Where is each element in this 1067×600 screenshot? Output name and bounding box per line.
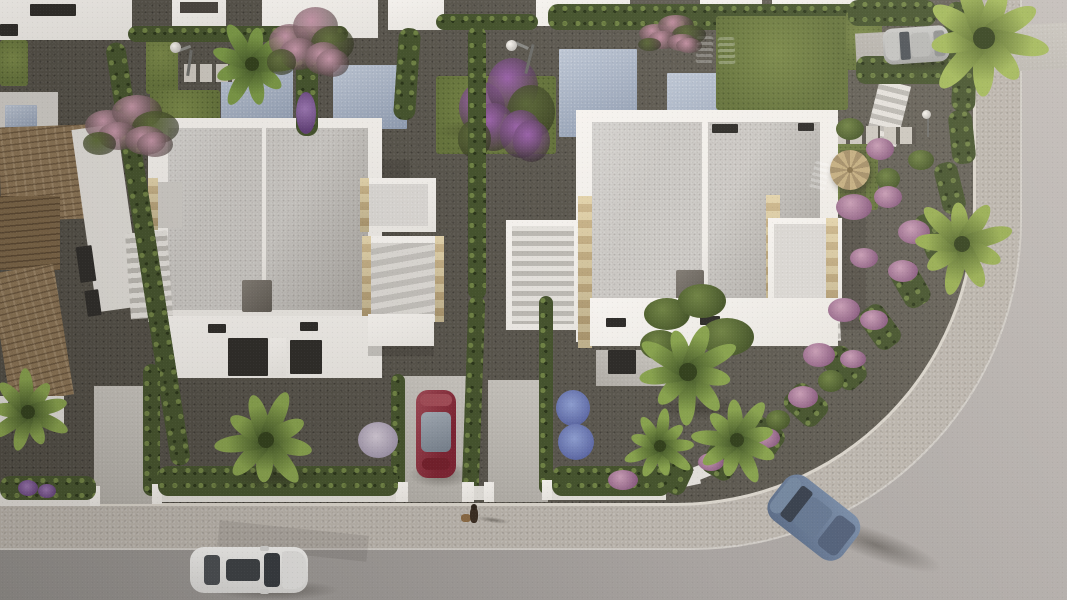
red-car-hood — [420, 394, 452, 406]
house2-skylight-2 — [798, 123, 814, 131]
palm-topright — [918, 0, 1050, 104]
street-lamp-1 — [170, 42, 196, 76]
tree-blob — [638, 38, 661, 52]
house1-canopy — [368, 314, 434, 346]
bush-pink-10 — [840, 350, 866, 368]
street-lamp-2 — [506, 36, 538, 74]
pink-tree-1 — [78, 94, 168, 156]
house1-porch-glass-1 — [228, 338, 268, 376]
bush-hydrangea-2 — [558, 424, 594, 460]
palm-crown — [679, 363, 696, 380]
red-car-roofbar — [421, 430, 451, 436]
palm-house2-b — [691, 394, 783, 486]
palm-house2-c — [622, 408, 698, 484]
palm-crown — [21, 405, 35, 419]
house1-window-2 — [300, 322, 318, 331]
bush-pink-5 — [850, 248, 878, 268]
aerial-3d-render — [0, 0, 1067, 600]
lawn-top-corner — [0, 40, 28, 86]
silver-car-windshield — [899, 31, 911, 60]
house1-roof-box — [242, 280, 272, 312]
house1-terrace-upper-floor — [368, 184, 428, 226]
bush-pink-2 — [836, 194, 872, 220]
gate-pillar-5 — [484, 482, 494, 502]
house2-window-1 — [606, 318, 626, 327]
bush-green-8 — [836, 118, 864, 140]
bush-pink-11 — [788, 386, 818, 408]
tree-blob — [83, 132, 115, 154]
lamp-pole — [927, 117, 929, 137]
neighbor-roof-1-window-b — [0, 24, 18, 36]
white-car-mirror-a — [260, 546, 269, 551]
tree-blob — [316, 49, 349, 77]
pink-tree-3 — [634, 14, 698, 52]
lamp-head — [506, 40, 517, 51]
house1-terrace-stone-a — [362, 236, 371, 322]
palm-crown — [973, 27, 994, 48]
bush-allium-white — [358, 422, 398, 458]
white-car-rear-glass — [204, 555, 220, 585]
bush-hydrangea-1 — [556, 390, 590, 426]
hedge-v5 — [539, 296, 553, 494]
house1-porch-column — [270, 338, 286, 376]
neighbor-roof-4 — [388, 0, 444, 30]
pedestrian-head — [471, 504, 477, 510]
garden-lamp — [922, 110, 934, 138]
white-car-hood — [282, 551, 306, 589]
bush-pink-3 — [874, 186, 902, 208]
parasol — [830, 150, 870, 190]
lamp-head — [922, 110, 931, 119]
silver-car-hood — [884, 32, 900, 61]
bush-purple-2 — [38, 484, 56, 498]
palm-plot1 — [214, 388, 318, 492]
bush-green-2 — [818, 370, 844, 392]
tree-blob — [137, 132, 173, 157]
bush-purple-1 — [18, 480, 38, 496]
tree-blob — [513, 120, 550, 162]
lamp-head — [170, 42, 181, 53]
hedge-mid-column — [468, 26, 486, 300]
neighbor-roof-2-top — [180, 2, 218, 13]
vine-purple — [296, 92, 316, 134]
sunlounger-2 — [718, 37, 736, 66]
neighbor-roof-1-window — [30, 4, 76, 16]
bush-pink-9 — [803, 343, 835, 367]
white-car-sunroof — [226, 559, 260, 581]
lawn-d — [716, 16, 848, 110]
house2-porch-glass — [608, 350, 636, 374]
tree-blob — [267, 49, 297, 74]
bush-pink-7 — [828, 298, 860, 322]
house1-porch-glass-2 — [290, 340, 322, 374]
lamp-pole — [186, 50, 193, 76]
bush-green-9 — [908, 150, 934, 170]
palm-oldhouse — [0, 368, 72, 456]
white-car-windshield — [264, 553, 280, 587]
bush-pink-1 — [866, 138, 894, 160]
palm-right-mid — [910, 192, 1014, 296]
gate-pillar-6 — [542, 480, 552, 500]
bush-pink-8 — [860, 310, 888, 330]
hedge-top-2 — [436, 14, 538, 30]
house2-skylight-1 — [712, 124, 738, 133]
palm-crown — [654, 440, 666, 452]
white-car-mirror-b — [260, 589, 269, 594]
tree-blob — [676, 38, 702, 53]
red-car-rear — [422, 458, 450, 470]
house1-terrace-stone-b — [435, 236, 444, 322]
house1-terrace-upper-stone — [360, 178, 369, 232]
parasol-pole-cap — [847, 167, 853, 173]
house1-canopy-shadow — [368, 346, 434, 356]
pink-tree-2 — [262, 6, 344, 76]
bush-green-5 — [678, 284, 726, 318]
white-car — [190, 546, 310, 594]
oldhouse-tile-roof-2 — [0, 196, 60, 270]
red-car — [415, 386, 457, 482]
house1-window-1 — [208, 324, 226, 333]
house1-terrace-lower-floor — [371, 243, 435, 315]
house1-terrace-left-floor — [158, 182, 182, 228]
